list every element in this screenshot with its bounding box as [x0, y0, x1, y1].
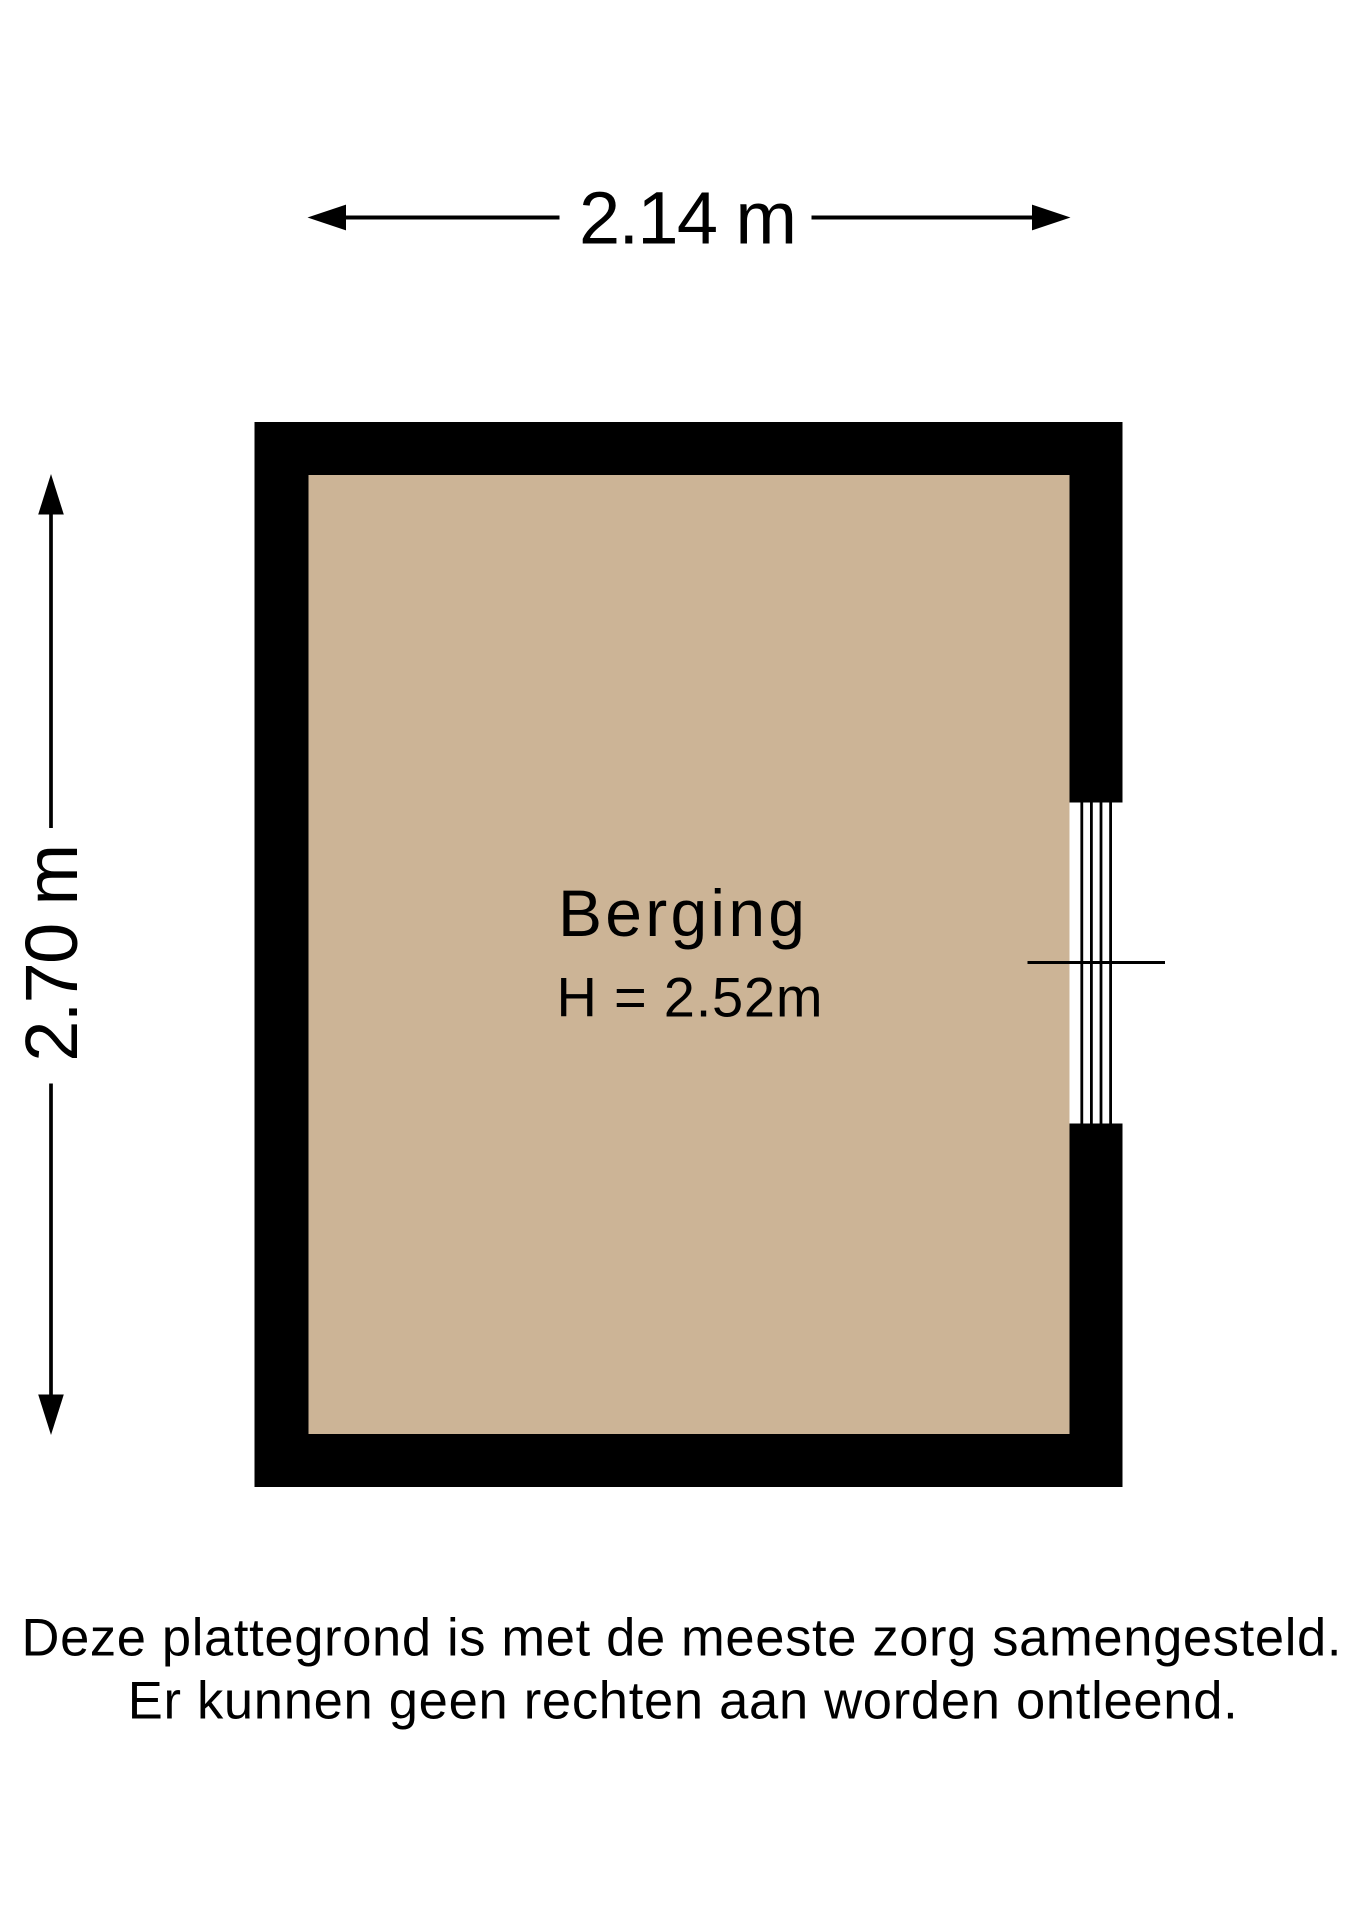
svg-text:2.70 m: 2.70 m: [10, 844, 93, 1062]
svg-text:Deze plattegrond is met de mee: Deze plattegrond is met de meeste zorg s…: [22, 1609, 1342, 1668]
svg-text:2.14 m: 2.14 m: [579, 177, 797, 260]
svg-text:Er kunnen geen rechten aan wor: Er kunnen geen rechten aan worden ontlee…: [128, 1672, 1238, 1731]
svg-text:H = 2.52m: H = 2.52m: [557, 966, 823, 1029]
svg-text:Berging: Berging: [558, 876, 805, 950]
